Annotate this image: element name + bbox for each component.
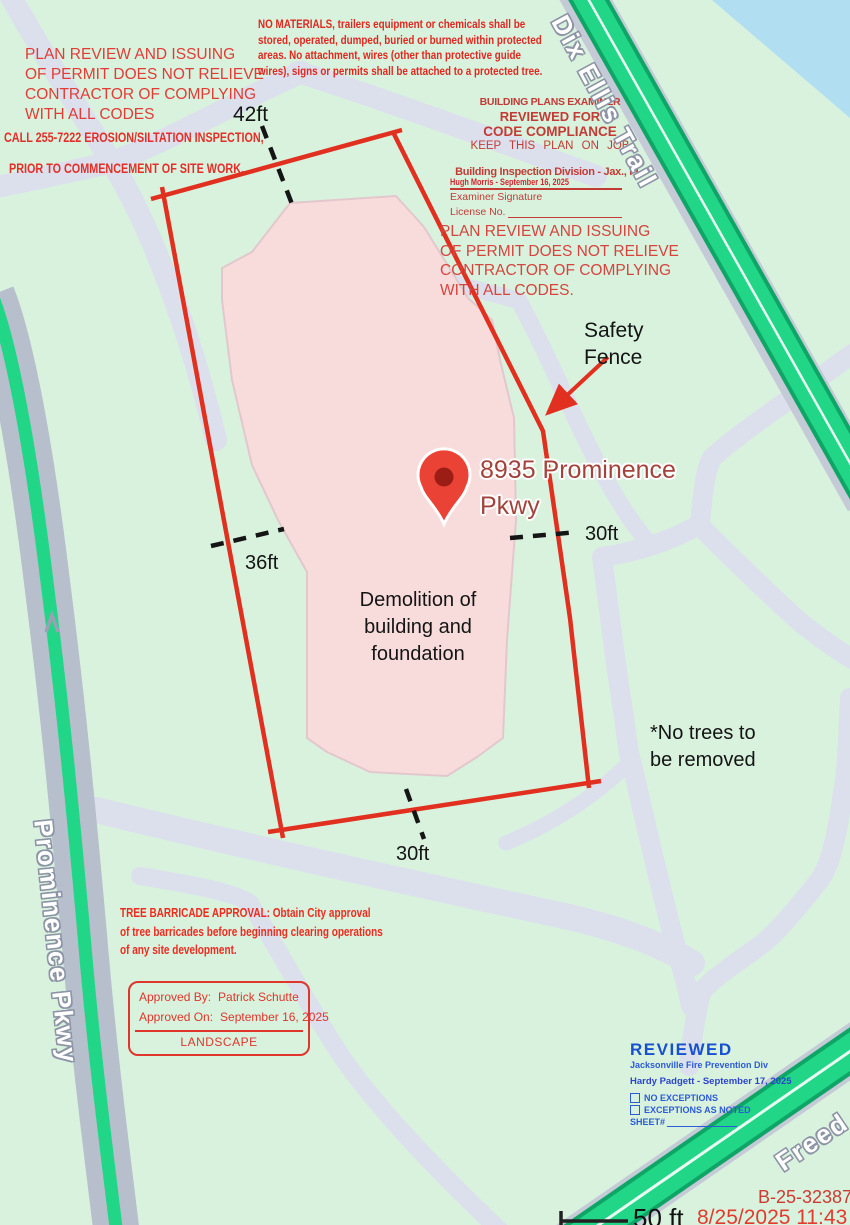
address-label: 8935 Prominence Pkwy xyxy=(480,452,676,524)
fire-stamp-signature: Hardy Padgett - September 17, 2025 xyxy=(630,1076,792,1087)
notice-line: CALL 255-7222 EROSION/SILTATION INSPECTI… xyxy=(4,130,264,145)
dimension-right: 30ft xyxy=(585,523,618,546)
fire-stamp-org: Jacksonville Fire Prevention Div xyxy=(630,1060,792,1070)
notice-line: PLAN REVIEW AND ISSUING xyxy=(440,222,679,242)
plan-review-notice-right: PLAN REVIEW AND ISSUING OF PERMIT DOES N… xyxy=(440,222,679,300)
approved-by-label: Approved By: xyxy=(139,990,211,1004)
notice-line: PLAN REVIEW AND ISSUING xyxy=(25,45,264,65)
label-line: Fence xyxy=(584,344,644,371)
label-line: Demolition of xyxy=(345,587,491,614)
approved-on-value: September 16, 2025 xyxy=(220,1010,329,1024)
label-line: building and xyxy=(345,614,491,641)
checkbox-no-exceptions xyxy=(630,1093,640,1103)
notice-line: of any site development. xyxy=(120,941,383,960)
notice-line: OF PERMIT DOES NOT RELIEVE xyxy=(440,242,679,262)
license-blank-line xyxy=(508,206,622,218)
notice-line: of tree barricades before beginning clea… xyxy=(120,923,383,942)
examiner-signature-block: Hugh Morris - September 16, 2025 Examine… xyxy=(450,177,622,218)
notice-line: stored, operated, dumped, buried or burn… xyxy=(258,33,542,49)
approved-on-label: Approved On: xyxy=(139,1010,213,1024)
approved-by-value: Patrick Schutte xyxy=(218,990,299,1004)
notice-line: OF PERMIT DOES NOT RELIEVE xyxy=(25,65,264,85)
plan-review-notice-top: PLAN REVIEW AND ISSUING OF PERMIT DOES N… xyxy=(25,45,264,125)
license-label: License No. xyxy=(450,206,505,218)
notice-line: wires), signs or permits shall be attach… xyxy=(258,64,542,80)
address-line: Pkwy xyxy=(480,488,676,524)
label-line: be removed xyxy=(650,747,756,774)
scale-label: 50 ft xyxy=(633,1203,684,1225)
label-line: Safety xyxy=(584,317,644,344)
sheet-label: SHEET# xyxy=(630,1117,665,1127)
notice-line: CONTRACTOR OF COMPLYING xyxy=(440,261,679,281)
checkbox-label: EXCEPTIONS AS NOTED xyxy=(644,1105,751,1115)
site-work-notice: PRIOR TO COMMENCEMENT OF SITE WORK. xyxy=(9,161,303,176)
notice-line: WITH ALL CODES. xyxy=(440,281,679,301)
dimension-left: 36ft xyxy=(245,552,278,575)
demolition-label: Demolition of building and foundation xyxy=(345,587,491,668)
notice-line: areas. No attachment, wires (other than … xyxy=(258,48,542,64)
landscape-approval-stamp: Approved By: Patrick Schutte Approved On… xyxy=(128,981,310,1056)
approval-category: LANDSCAPE xyxy=(139,1035,299,1049)
checkbox-exceptions-noted xyxy=(630,1105,640,1115)
fire-stamp-title: REVIEWED xyxy=(630,1040,792,1060)
notice-line: PRIOR TO COMMENCEMENT OF SITE WORK. xyxy=(9,161,244,176)
signature-label: Examiner Signature xyxy=(450,191,622,203)
examiner-signature-value: Hugh Morris - September 16, 2025 xyxy=(450,177,591,187)
notice-line: TREE BARRICADE APPROVAL: Obtain City app… xyxy=(120,904,383,923)
no-materials-notice: NO MATERIALS, trailers equipment or chem… xyxy=(258,17,542,79)
no-trees-label: *No trees to be removed xyxy=(650,720,756,774)
checkbox-label: NO EXCEPTIONS xyxy=(644,1093,718,1103)
erosion-inspection-notice: CALL 255-7222 EROSION/SILTATION INSPECTI… xyxy=(4,130,329,145)
notice-line: CONTRACTOR OF COMPLYING xyxy=(25,85,264,105)
signature-line xyxy=(450,188,622,190)
safety-fence-label: Safety Fence xyxy=(584,317,644,371)
dimension-top: 42ft xyxy=(233,103,268,127)
address-line: 8935 Prominence xyxy=(480,452,676,488)
print-timestamp: 8/25/2025 11:43 xyxy=(697,1206,847,1225)
fire-prevention-stamp: REVIEWED Jacksonville Fire Prevention Di… xyxy=(630,1040,792,1127)
label-line: foundation xyxy=(345,641,491,668)
notice-line: NO MATERIALS, trailers equipment or chem… xyxy=(258,17,542,33)
site-plan-map: PLAN REVIEW AND ISSUING OF PERMIT DOES N… xyxy=(0,0,850,1225)
notice-line: WITH ALL CODES xyxy=(25,105,264,125)
dimension-bottom: 30ft xyxy=(396,843,429,866)
permit-number: B-25-32387 xyxy=(758,1187,850,1208)
label-line: *No trees to xyxy=(650,720,756,747)
tree-barricade-notice: TREE BARRICADE APPROVAL: Obtain City app… xyxy=(120,904,383,960)
sheet-blank-line xyxy=(667,1117,737,1127)
stamp-divider xyxy=(135,1030,303,1032)
